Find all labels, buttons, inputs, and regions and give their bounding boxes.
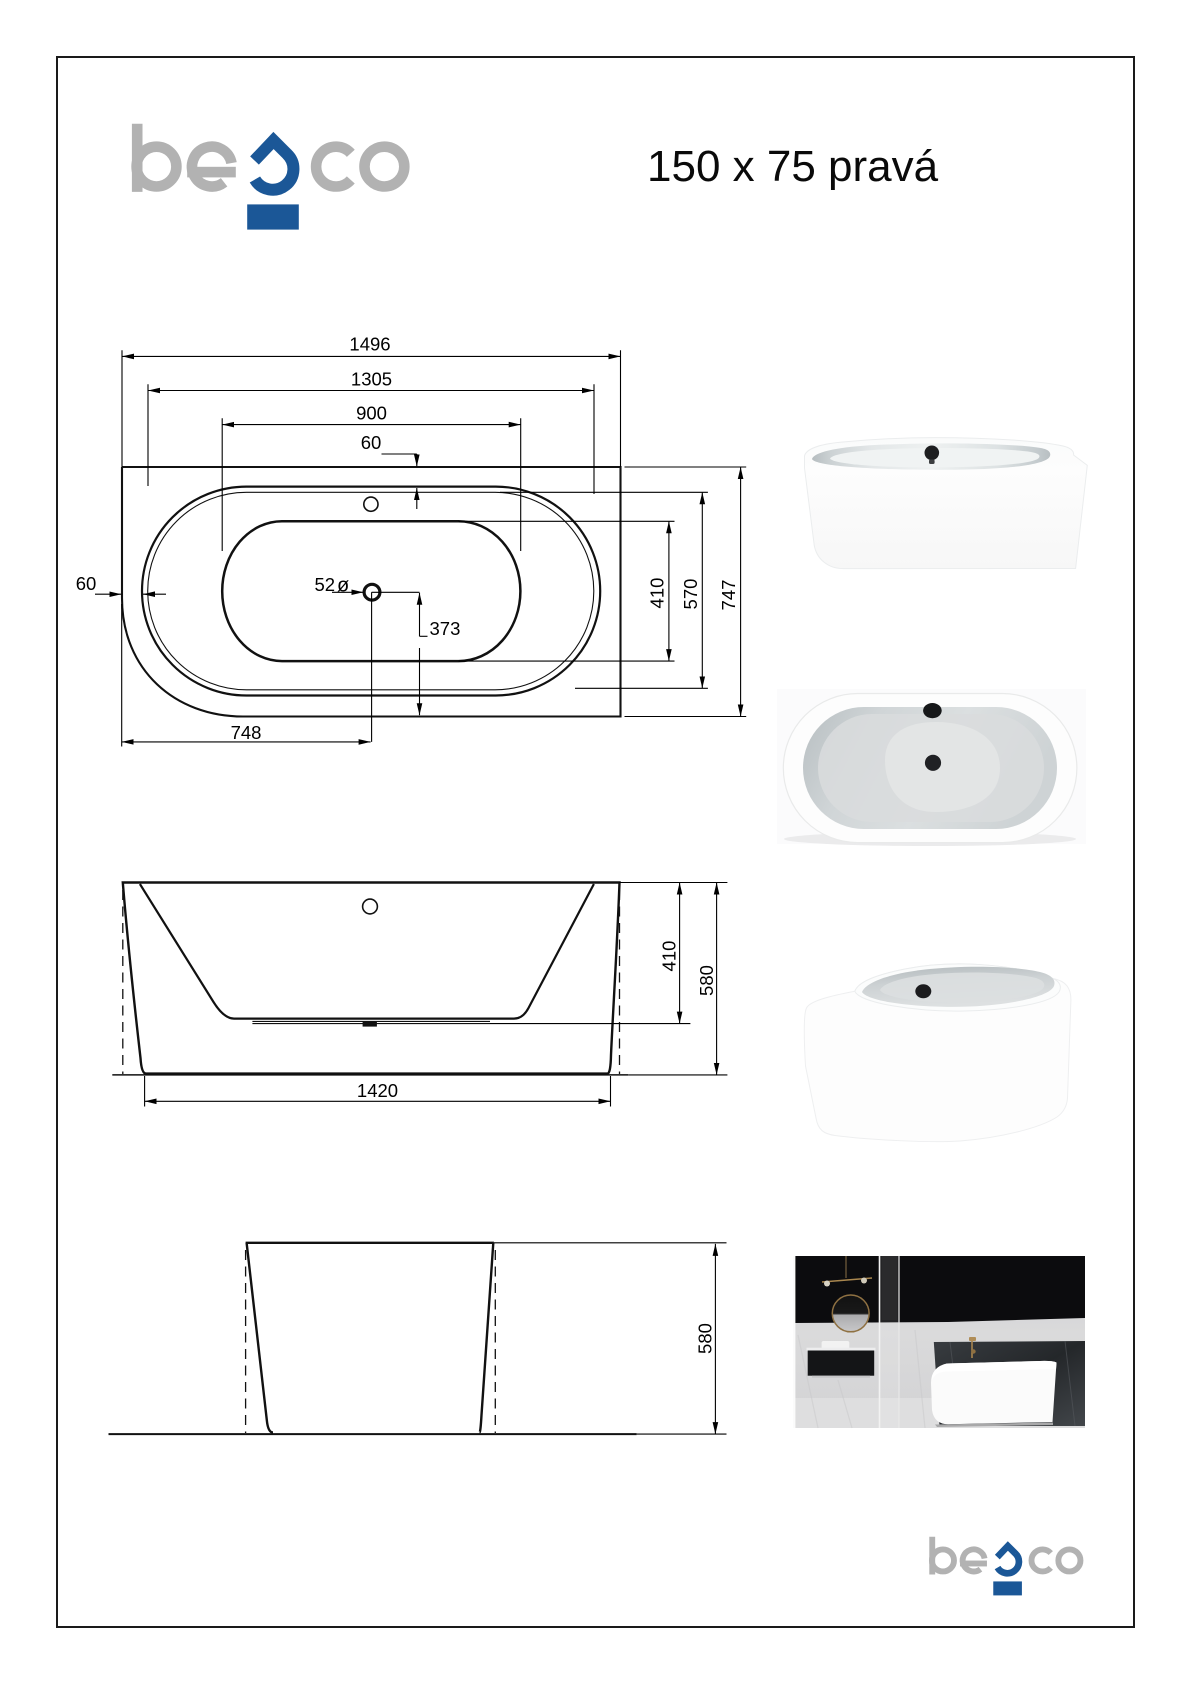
svg-text:ø: ø — [337, 575, 349, 597]
svg-text:150 x 75 pravá: 150 x 75 pravá — [647, 142, 939, 191]
svg-text:748: 748 — [231, 722, 262, 743]
svg-text:410: 410 — [647, 578, 668, 609]
svg-text:1305: 1305 — [351, 369, 392, 390]
svg-text:60: 60 — [361, 432, 382, 453]
svg-text:570: 570 — [680, 579, 701, 610]
svg-text:410: 410 — [658, 941, 679, 972]
svg-text:747: 747 — [718, 580, 739, 611]
svg-text:373: 373 — [430, 618, 461, 639]
svg-text:900: 900 — [356, 403, 387, 424]
svg-text:52: 52 — [315, 574, 336, 595]
svg-text:1420: 1420 — [357, 1080, 398, 1101]
svg-text:580: 580 — [695, 1323, 716, 1354]
svg-text:60: 60 — [76, 573, 97, 594]
svg-text:1496: 1496 — [349, 334, 390, 355]
svg-text:580: 580 — [696, 965, 717, 996]
